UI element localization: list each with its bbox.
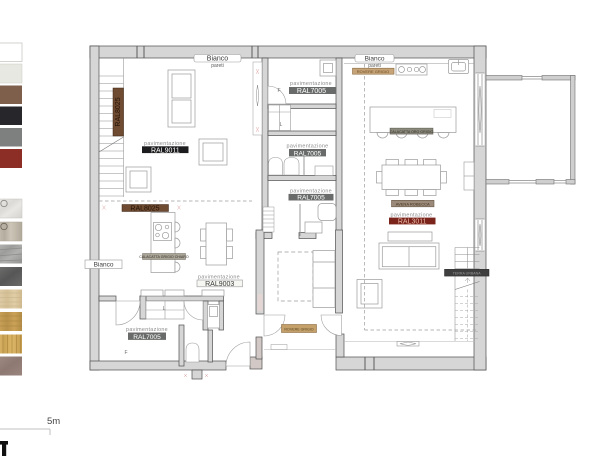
svg-text:CALACATTA GRIGIO CHIARO: CALACATTA GRIGIO CHIARO: [139, 255, 189, 259]
svg-text:RAL7005: RAL7005: [133, 334, 161, 341]
svg-text:RAL9011: RAL9011: [151, 147, 180, 154]
svg-text:5m: 5m: [47, 416, 60, 427]
svg-text:pavimentazione: pavimentazione: [287, 144, 329, 150]
svg-text:L: L: [280, 122, 283, 128]
svg-text:RAL8025: RAL8025: [115, 97, 122, 126]
svg-text:pavimentazione: pavimentazione: [126, 327, 168, 333]
svg-text:L: L: [163, 306, 166, 312]
svg-text:AVENA ROBECCA: AVENA ROBECCA: [396, 201, 430, 206]
svg-text:RAL7005: RAL7005: [294, 150, 322, 157]
svg-text:TERRA URBANA: TERRA URBANA: [453, 271, 482, 275]
svg-text:Bianco: Bianco: [94, 262, 114, 269]
svg-text:RAL8025: RAL8025: [130, 206, 159, 213]
svg-text:CALACATTA ORO GRIGIO: CALACATTA ORO GRIGIO: [390, 130, 434, 134]
svg-text:pavimentazione: pavimentazione: [290, 188, 332, 194]
svg-text:RAL9003: RAL9003: [205, 281, 234, 288]
svg-text:pavimentazione: pavimentazione: [391, 212, 433, 218]
svg-text:pareti: pareti: [211, 63, 224, 69]
svg-text:ROVERE GRIGIO: ROVERE GRIGIO: [284, 328, 313, 332]
svg-text:pavimentazione: pavimentazione: [144, 141, 186, 147]
svg-text:ROVERE GRIGIO: ROVERE GRIGIO: [357, 69, 389, 74]
svg-text:F: F: [124, 350, 127, 356]
svg-text:RAL7005: RAL7005: [297, 88, 326, 95]
svg-text:pavimentazione: pavimentazione: [290, 81, 332, 87]
svg-text:Bianco: Bianco: [365, 55, 385, 62]
svg-text:F: F: [277, 88, 280, 94]
svg-text:pavimentazione: pavimentazione: [198, 274, 240, 280]
svg-text:RAL7005: RAL7005: [297, 195, 325, 202]
svg-text:RAL3011: RAL3011: [398, 219, 427, 226]
svg-text:Bianco: Bianco: [207, 55, 229, 62]
